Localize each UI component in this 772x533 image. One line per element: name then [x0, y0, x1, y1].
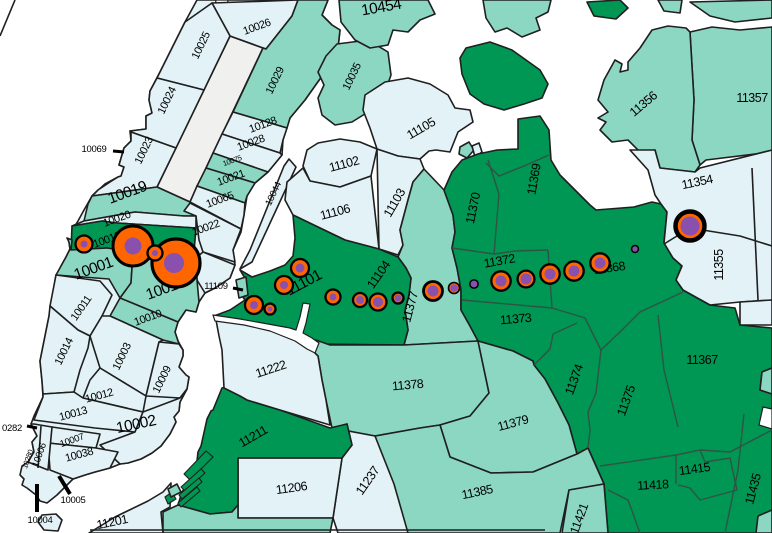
svg-text:11373: 11373	[499, 311, 532, 328]
svg-text:0282: 0282	[2, 423, 22, 434]
svg-text:11355: 11355	[712, 249, 726, 281]
svg-text:10069: 10069	[82, 144, 107, 155]
svg-text:11109: 11109	[204, 281, 228, 292]
svg-text:11378: 11378	[391, 377, 424, 394]
svg-text:11418: 11418	[637, 477, 670, 493]
svg-text:10004: 10004	[28, 515, 53, 526]
svg-text:11367: 11367	[686, 353, 718, 367]
svg-text:11357: 11357	[736, 91, 768, 105]
svg-text:10005: 10005	[61, 495, 86, 506]
